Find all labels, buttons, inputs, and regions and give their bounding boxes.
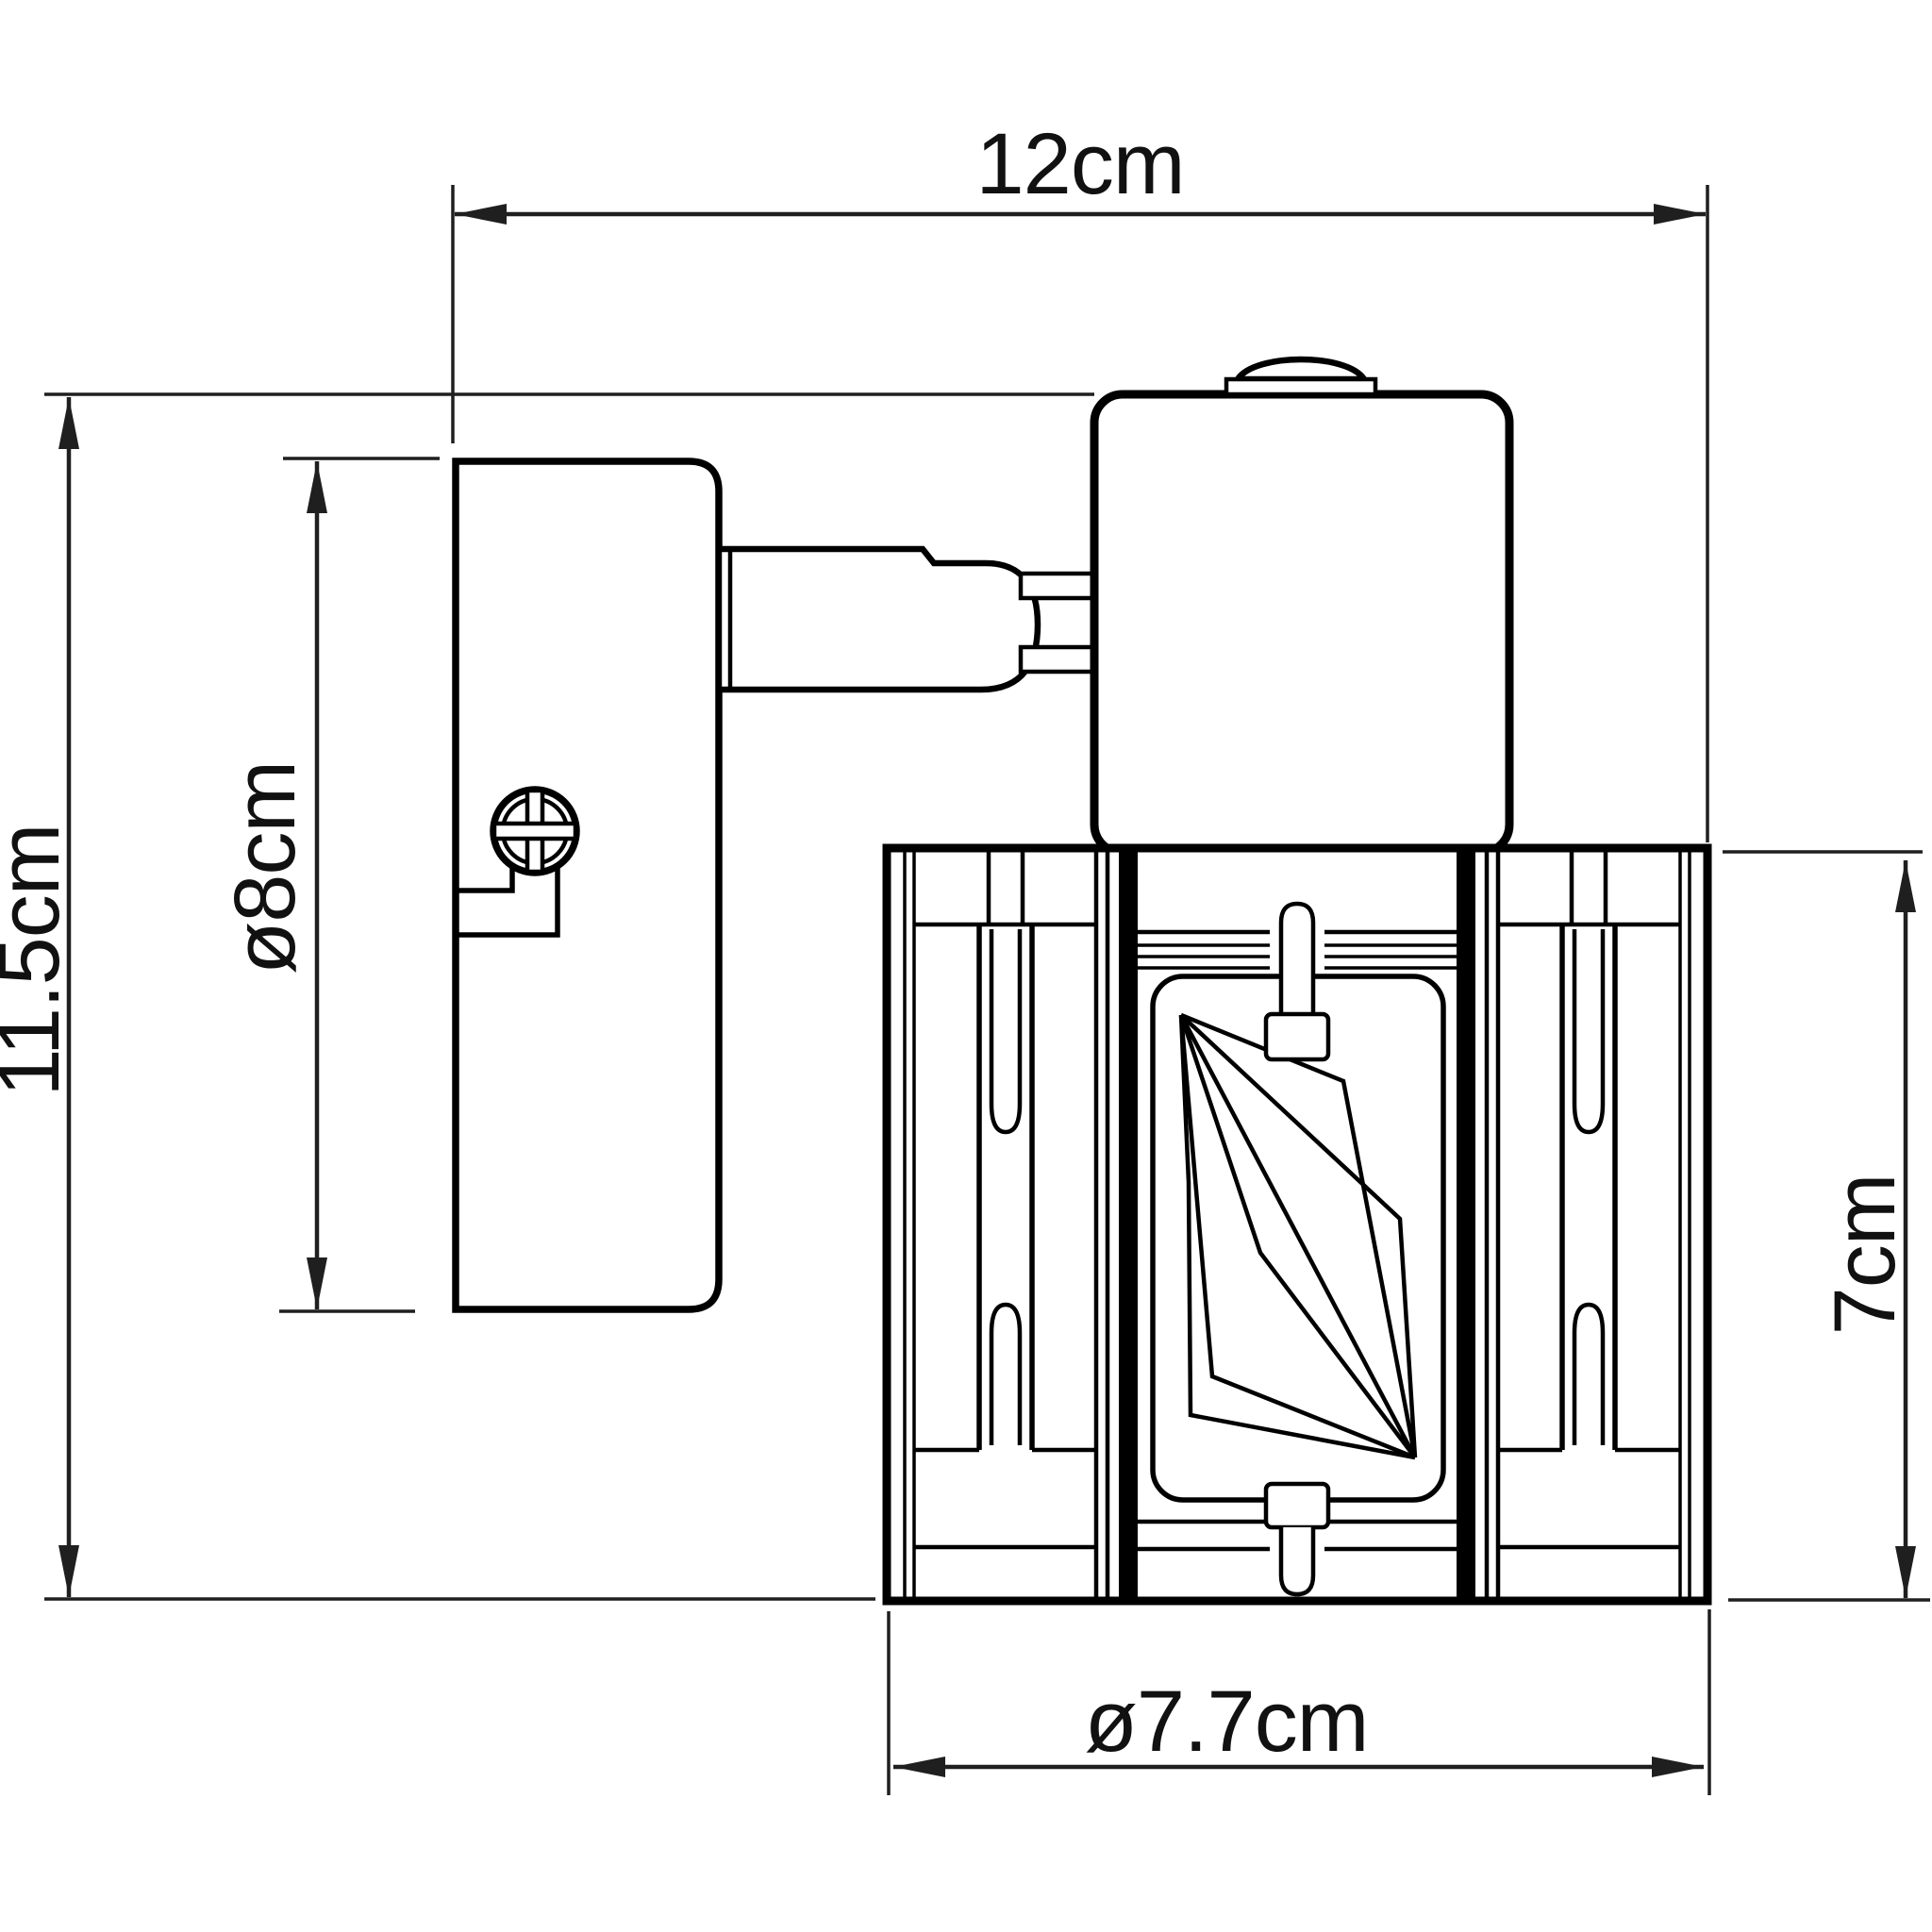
phillips-screw-icon bbox=[493, 790, 576, 873]
switch-button bbox=[1226, 359, 1375, 394]
dim-label-backplate-diameter: ø8cm bbox=[217, 761, 313, 974]
dim-backplate-diameter: ø8cm bbox=[217, 461, 327, 1309]
arrow-down-icon bbox=[307, 1257, 327, 1309]
pivot-arm bbox=[719, 549, 1096, 690]
crystal-panel bbox=[1138, 904, 1457, 1594]
dim-shade-diameter: ø7.7cm bbox=[893, 1674, 1704, 1777]
arrow-up-icon bbox=[307, 461, 327, 513]
arm-tab-upper bbox=[1021, 574, 1096, 598]
slat-bar-left bbox=[1119, 852, 1138, 1597]
arrow-right-icon bbox=[1654, 204, 1706, 225]
wall-backplate bbox=[456, 461, 719, 1309]
arrow-down-icon bbox=[1895, 1546, 1916, 1598]
lamp-technical-drawing: 12cm 11.5cm ø8cm 7cm ø7.7cm bbox=[0, 0, 1932, 1932]
dim-overall-height: 11.5cm bbox=[0, 397, 79, 1597]
arrow-up-icon bbox=[58, 397, 79, 449]
arrow-down-icon bbox=[58, 1545, 79, 1597]
dim-label-overall-width: 12cm bbox=[976, 116, 1185, 212]
arrow-left-icon bbox=[455, 204, 507, 225]
arrow-up-icon bbox=[1895, 860, 1916, 912]
dim-shade-height: 7cm bbox=[1817, 860, 1916, 1598]
technical-drawing-canvas: 12cm 11.5cm ø8cm 7cm ø7.7cm bbox=[0, 0, 1932, 1932]
slat-bar-right bbox=[1457, 852, 1475, 1597]
dim-label-shade-height: 7cm bbox=[1817, 1174, 1913, 1336]
dim-label-overall-height: 11.5cm bbox=[0, 824, 77, 1097]
arrow-right-icon bbox=[1652, 1757, 1704, 1777]
dim-overall-width: 12cm bbox=[455, 116, 1706, 225]
arrow-left-icon bbox=[893, 1757, 945, 1777]
arm-tab-lower bbox=[1021, 647, 1096, 672]
lamp-shade bbox=[887, 848, 1707, 1601]
dim-label-shade-diameter: ø7.7cm bbox=[1085, 1674, 1369, 1770]
lamp-body bbox=[1094, 359, 1509, 853]
